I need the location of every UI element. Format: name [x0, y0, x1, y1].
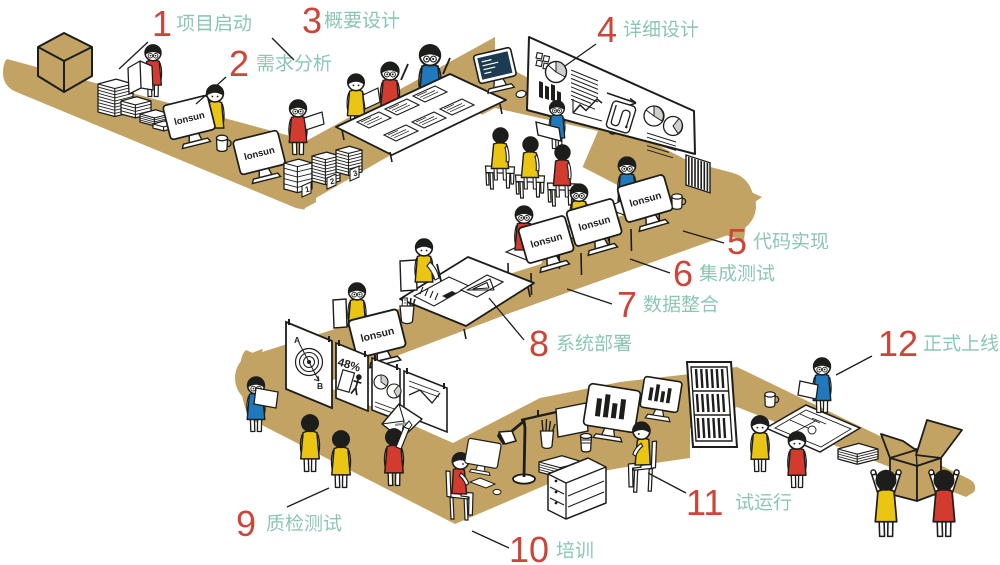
svg-text:1: 1 [152, 3, 172, 44]
svg-text:8: 8 [529, 323, 549, 364]
svg-text:9: 9 [236, 503, 256, 544]
svg-text:10: 10 [509, 529, 549, 565]
svg-text:7: 7 [617, 284, 637, 325]
svg-text:6: 6 [673, 253, 693, 294]
svg-text:3: 3 [302, 0, 322, 41]
svg-text:5: 5 [727, 221, 747, 262]
svg-text:2: 2 [229, 43, 249, 84]
svg-text:B: B [317, 381, 323, 391]
svg-text:11: 11 [686, 482, 723, 523]
svg-text:12: 12 [878, 323, 918, 364]
svg-text:4: 4 [597, 9, 617, 50]
